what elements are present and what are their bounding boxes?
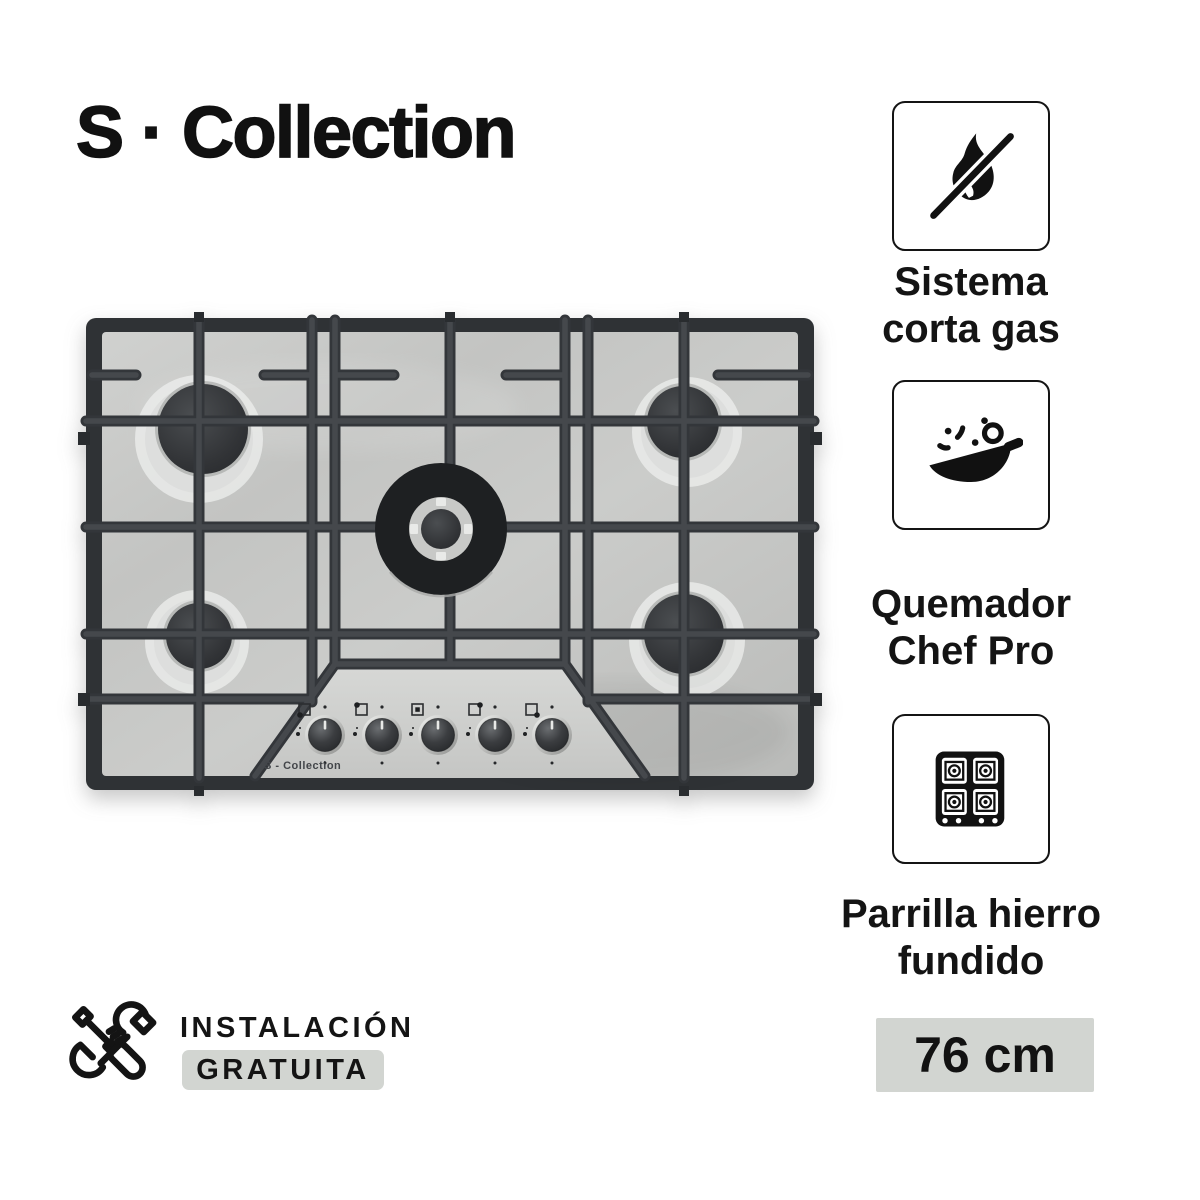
feature-box-parrilla (892, 714, 1050, 864)
no-flame-icon (919, 124, 1023, 228)
size-badge: 76 cm (876, 1018, 1094, 1092)
feature-label-parrilla: Parrilla hierro fundido (830, 891, 1112, 985)
feature-label-quemador: Quemador Chef Pro (830, 581, 1112, 675)
cast-iron-grate-icon (919, 737, 1023, 841)
installation-highlight: GRATUITA (182, 1050, 384, 1090)
brand-logo: S · Collection (76, 92, 515, 174)
tools-icon (58, 994, 170, 1106)
feature-box-corta-gas (892, 101, 1050, 251)
burner-center (375, 463, 507, 596)
chef-pan-icon (919, 403, 1023, 507)
cooktop-product-image: S - Collection (78, 312, 822, 796)
installation-title: INSTALACIÓN (180, 1012, 415, 1045)
feature-label-corta-gas: Sistema corta gas (830, 259, 1112, 353)
panel-brand-label: S - Collection (264, 760, 341, 772)
product-card: S · Collection (0, 0, 1200, 1200)
feature-box-quemador (892, 380, 1050, 530)
